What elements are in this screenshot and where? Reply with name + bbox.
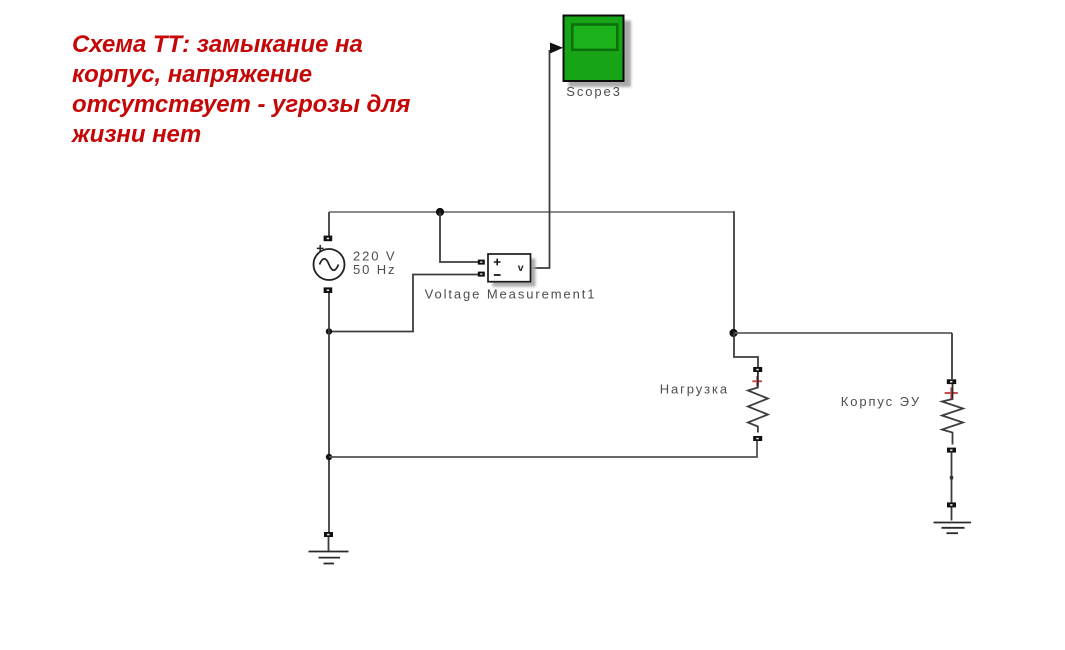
svg-text:50 Hz: 50 Hz [353,262,396,277]
svg-text:Scope3: Scope3 [566,84,622,99]
svg-text:Корпус ЭУ: Корпус ЭУ [841,394,921,409]
svg-text:Нагрузка: Нагрузка [660,382,729,397]
svg-text:Voltage Measurement1: Voltage Measurement1 [425,287,597,302]
svg-text:v: v [518,262,524,274]
